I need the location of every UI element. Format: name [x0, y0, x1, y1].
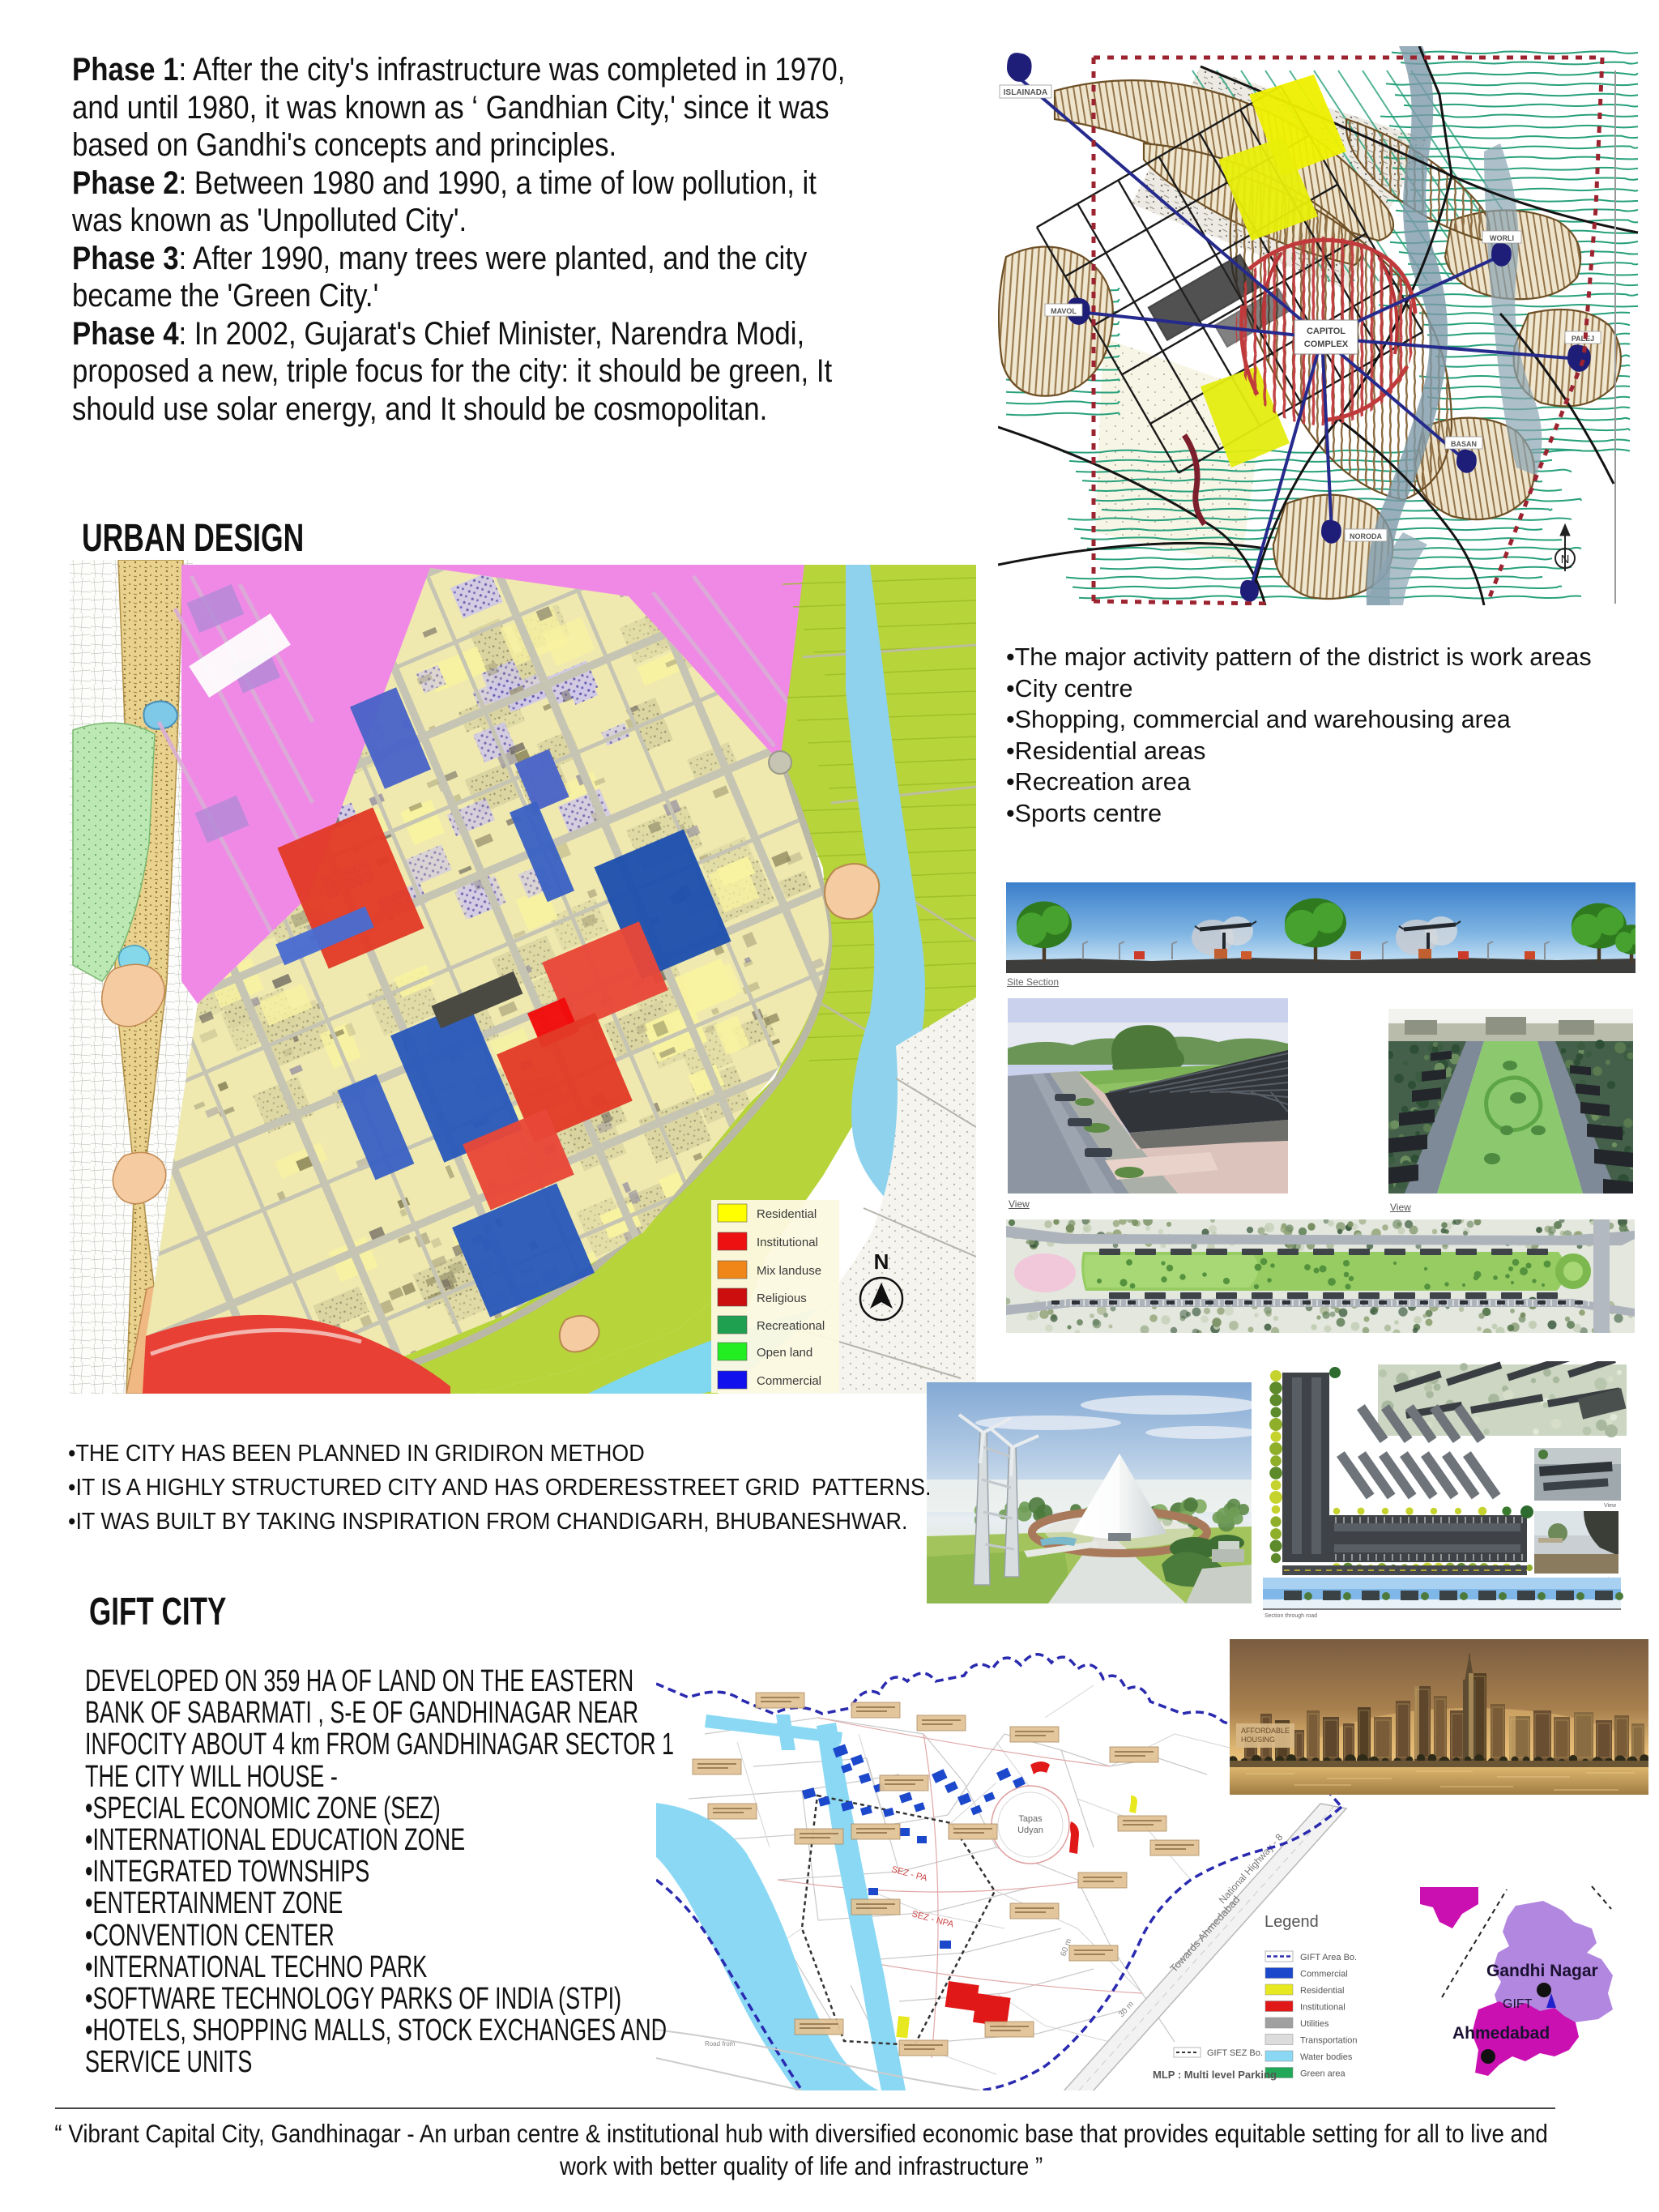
svg-text:BASAN: BASAN [1451, 440, 1477, 448]
svg-text:Ahmedabad: Ahmedabad [1452, 2024, 1550, 2043]
svg-text:Recreational: Recreational [757, 1319, 825, 1333]
svg-text:PALEJ: PALEJ [1572, 335, 1594, 343]
svg-text:Gandhi Nagar: Gandhi Nagar [1486, 1962, 1598, 1980]
svg-text:Mix landuse: Mix landuse [757, 1264, 821, 1278]
svg-text:Utilities: Utilities [1300, 2019, 1329, 2029]
svg-text:CAPITOL: CAPITOL [1307, 327, 1346, 336]
svg-text:WORLI: WORLI [1490, 234, 1514, 242]
svg-text:Transportation: Transportation [1300, 2036, 1358, 2046]
svg-text:N: N [1561, 553, 1570, 566]
svg-text:GIFT SEZ Bo.: GIFT SEZ Bo. [1207, 2048, 1263, 2058]
svg-text:Road from: Road from [705, 2040, 736, 2048]
svg-text:Open land: Open land [757, 1346, 812, 1360]
svg-text:GIFT Area Bo.: GIFT Area Bo. [1300, 1953, 1357, 1962]
svg-text:Section through road: Section through road [1265, 1613, 1317, 1619]
svg-text:View: View [1604, 1503, 1617, 1509]
svg-text:Water bodies: Water bodies [1300, 2052, 1353, 2062]
svg-text:NORODA: NORODA [1350, 532, 1382, 540]
svg-text:Institutional: Institutional [1300, 2003, 1346, 2013]
svg-text:COMPLEX: COMPLEX [1304, 339, 1349, 349]
svg-text:HOUSING: HOUSING [1241, 1736, 1275, 1744]
svg-text:Green area: Green area [1300, 2069, 1346, 2079]
svg-text:Udyan: Udyan [1017, 1826, 1043, 1835]
svg-text:Legend: Legend [1265, 1913, 1319, 1931]
svg-text:Residential: Residential [1300, 1986, 1344, 1996]
svg-text:GIFT: GIFT [1503, 1997, 1533, 2011]
svg-text:Commercial: Commercial [1300, 1970, 1348, 1979]
svg-text:Tapas: Tapas [1018, 1814, 1043, 1824]
svg-text:Religious: Religious [757, 1292, 807, 1305]
svg-text:Commercial: Commercial [757, 1374, 821, 1388]
svg-text:Residential: Residential [757, 1207, 817, 1221]
svg-text:AFFORDABLE: AFFORDABLE [1241, 1727, 1290, 1735]
svg-text:MLP : Multi level Parking: MLP : Multi level Parking [1153, 2069, 1277, 2081]
svg-text:N: N [874, 1249, 889, 1274]
svg-text:Institutional: Institutional [757, 1236, 818, 1249]
